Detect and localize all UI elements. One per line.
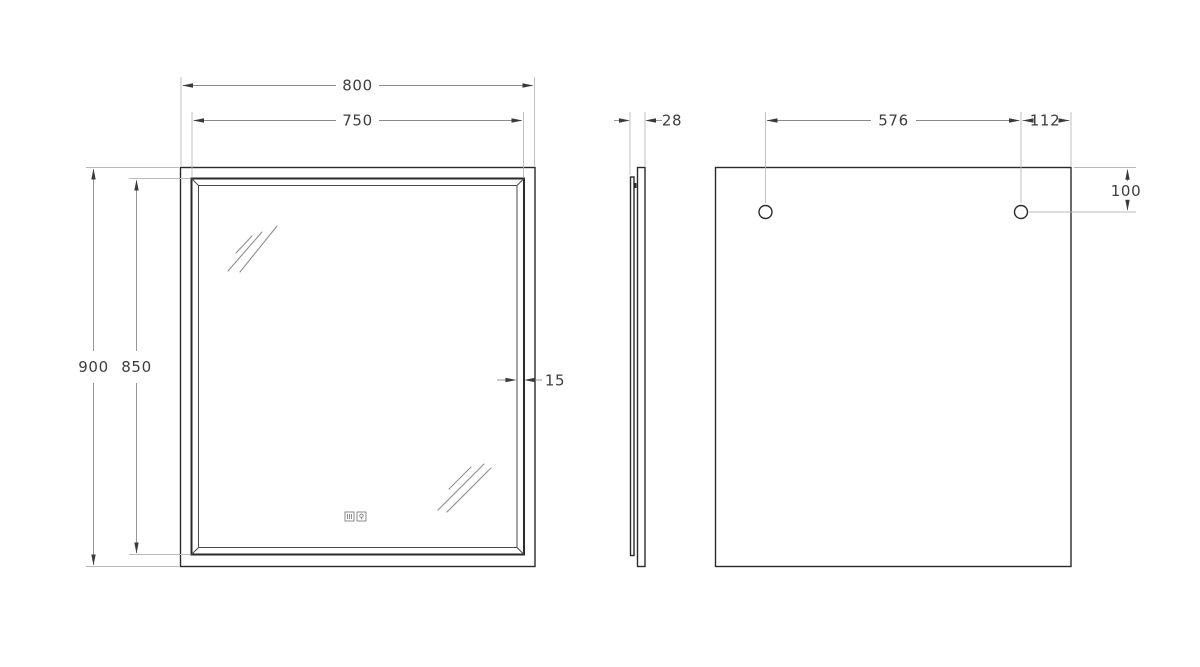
mounting-hole-right xyxy=(1015,206,1028,219)
dim-label-100: 100 xyxy=(1111,182,1141,200)
dim-frame-bevel-width: 15 xyxy=(497,372,565,390)
side-view xyxy=(631,168,646,567)
mirror-dimension-drawing: 800 750 900 850 15 xyxy=(0,0,1200,667)
front-view xyxy=(181,168,536,567)
side-glass-profile xyxy=(631,177,635,556)
back-view xyxy=(716,168,1072,567)
dim-label-15: 15 xyxy=(545,372,565,390)
dim-label-900: 900 xyxy=(78,358,108,376)
reflection-glint-bottom-right xyxy=(438,464,491,512)
side-frame-profile xyxy=(638,168,646,567)
drawing-canvas: 800 750 900 850 15 xyxy=(0,0,1200,667)
dim-label-800: 800 xyxy=(342,77,372,95)
dim-hole-spacing: 576 xyxy=(766,112,1022,204)
back-panel-edge xyxy=(716,168,1072,567)
dim-hole-from-top: 100 xyxy=(1029,168,1141,213)
dim-label-850: 850 xyxy=(121,358,151,376)
front-bevel-edge xyxy=(199,186,518,548)
side-glass-clip xyxy=(634,183,637,188)
dim-label-750: 750 xyxy=(342,112,372,130)
dim-label-28: 28 xyxy=(662,112,682,130)
reflection-glint-top-left xyxy=(228,226,277,272)
dim-front-height-glass: 850 xyxy=(121,179,190,555)
dim-label-112: 112 xyxy=(1030,112,1060,130)
light-touch-icon xyxy=(357,512,366,521)
bevel-corner-lines xyxy=(192,179,525,555)
mounting-hole-left xyxy=(759,206,772,219)
dim-side-depth: 28 xyxy=(614,112,682,176)
front-outer-frame-edge xyxy=(181,168,536,567)
front-glass-edge xyxy=(192,179,525,555)
dim-hole-to-edge: 112 xyxy=(1023,112,1072,167)
dim-label-576: 576 xyxy=(878,112,908,130)
anti-fog-icon xyxy=(345,512,354,521)
